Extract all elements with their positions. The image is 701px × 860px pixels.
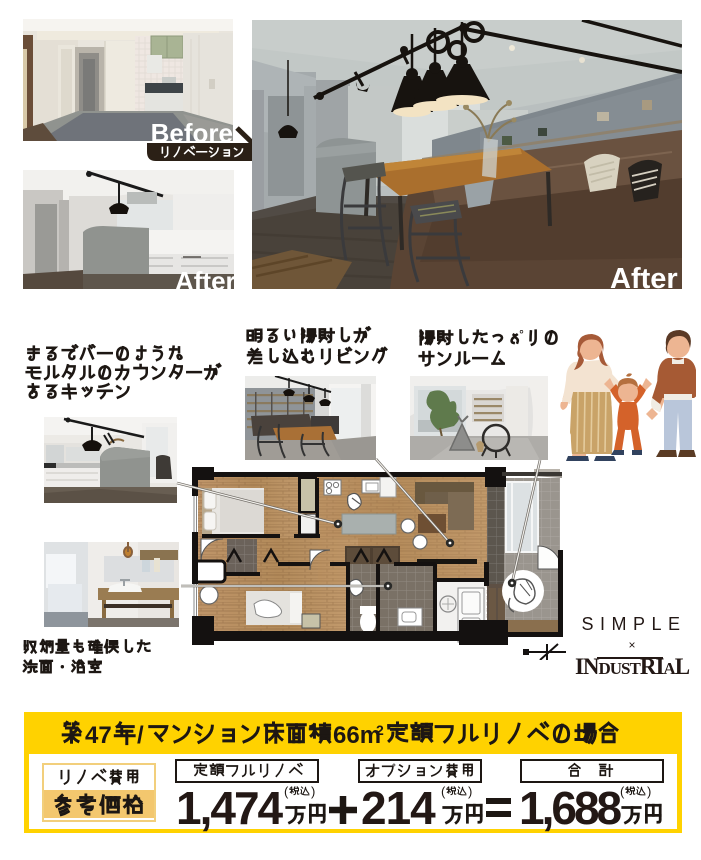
svg-text:47: 47 <box>85 722 112 749</box>
svg-text:): ) <box>468 784 472 799</box>
svg-text:(: ( <box>620 784 625 799</box>
svg-text:(: ( <box>441 784 446 799</box>
svg-text:): ) <box>647 784 651 799</box>
svg-text:66m: 66m <box>333 722 381 749</box>
svg-text:): ) <box>311 784 315 799</box>
svg-text:2: 2 <box>376 722 384 738</box>
svg-text:(: ( <box>284 784 289 799</box>
svg-text:/: / <box>137 722 144 749</box>
